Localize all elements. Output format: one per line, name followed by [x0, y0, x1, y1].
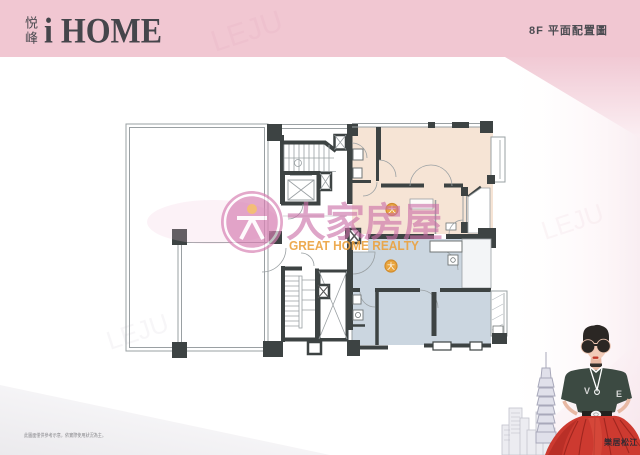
svg-text:峰: 峰 — [25, 31, 38, 46]
svg-text:GREAT HOME REALTY: GREAT HOME REALTY — [289, 238, 419, 253]
svg-text:樂居松江: 樂居松江 — [603, 437, 638, 447]
svg-text:此圖面僅供參考示意，依實際使用狀況為主。: 此圖面僅供參考示意，依實際使用狀況為主。 — [24, 432, 106, 439]
svg-text:悦: 悦 — [25, 16, 38, 31]
svg-text:大: 大 — [387, 261, 395, 271]
svg-text:E: E — [616, 389, 622, 399]
svg-text:i HOME: i HOME — [44, 11, 162, 51]
svg-text:V: V — [584, 386, 590, 396]
svg-text:8F 平面配置圖: 8F 平面配置圖 — [529, 23, 608, 37]
